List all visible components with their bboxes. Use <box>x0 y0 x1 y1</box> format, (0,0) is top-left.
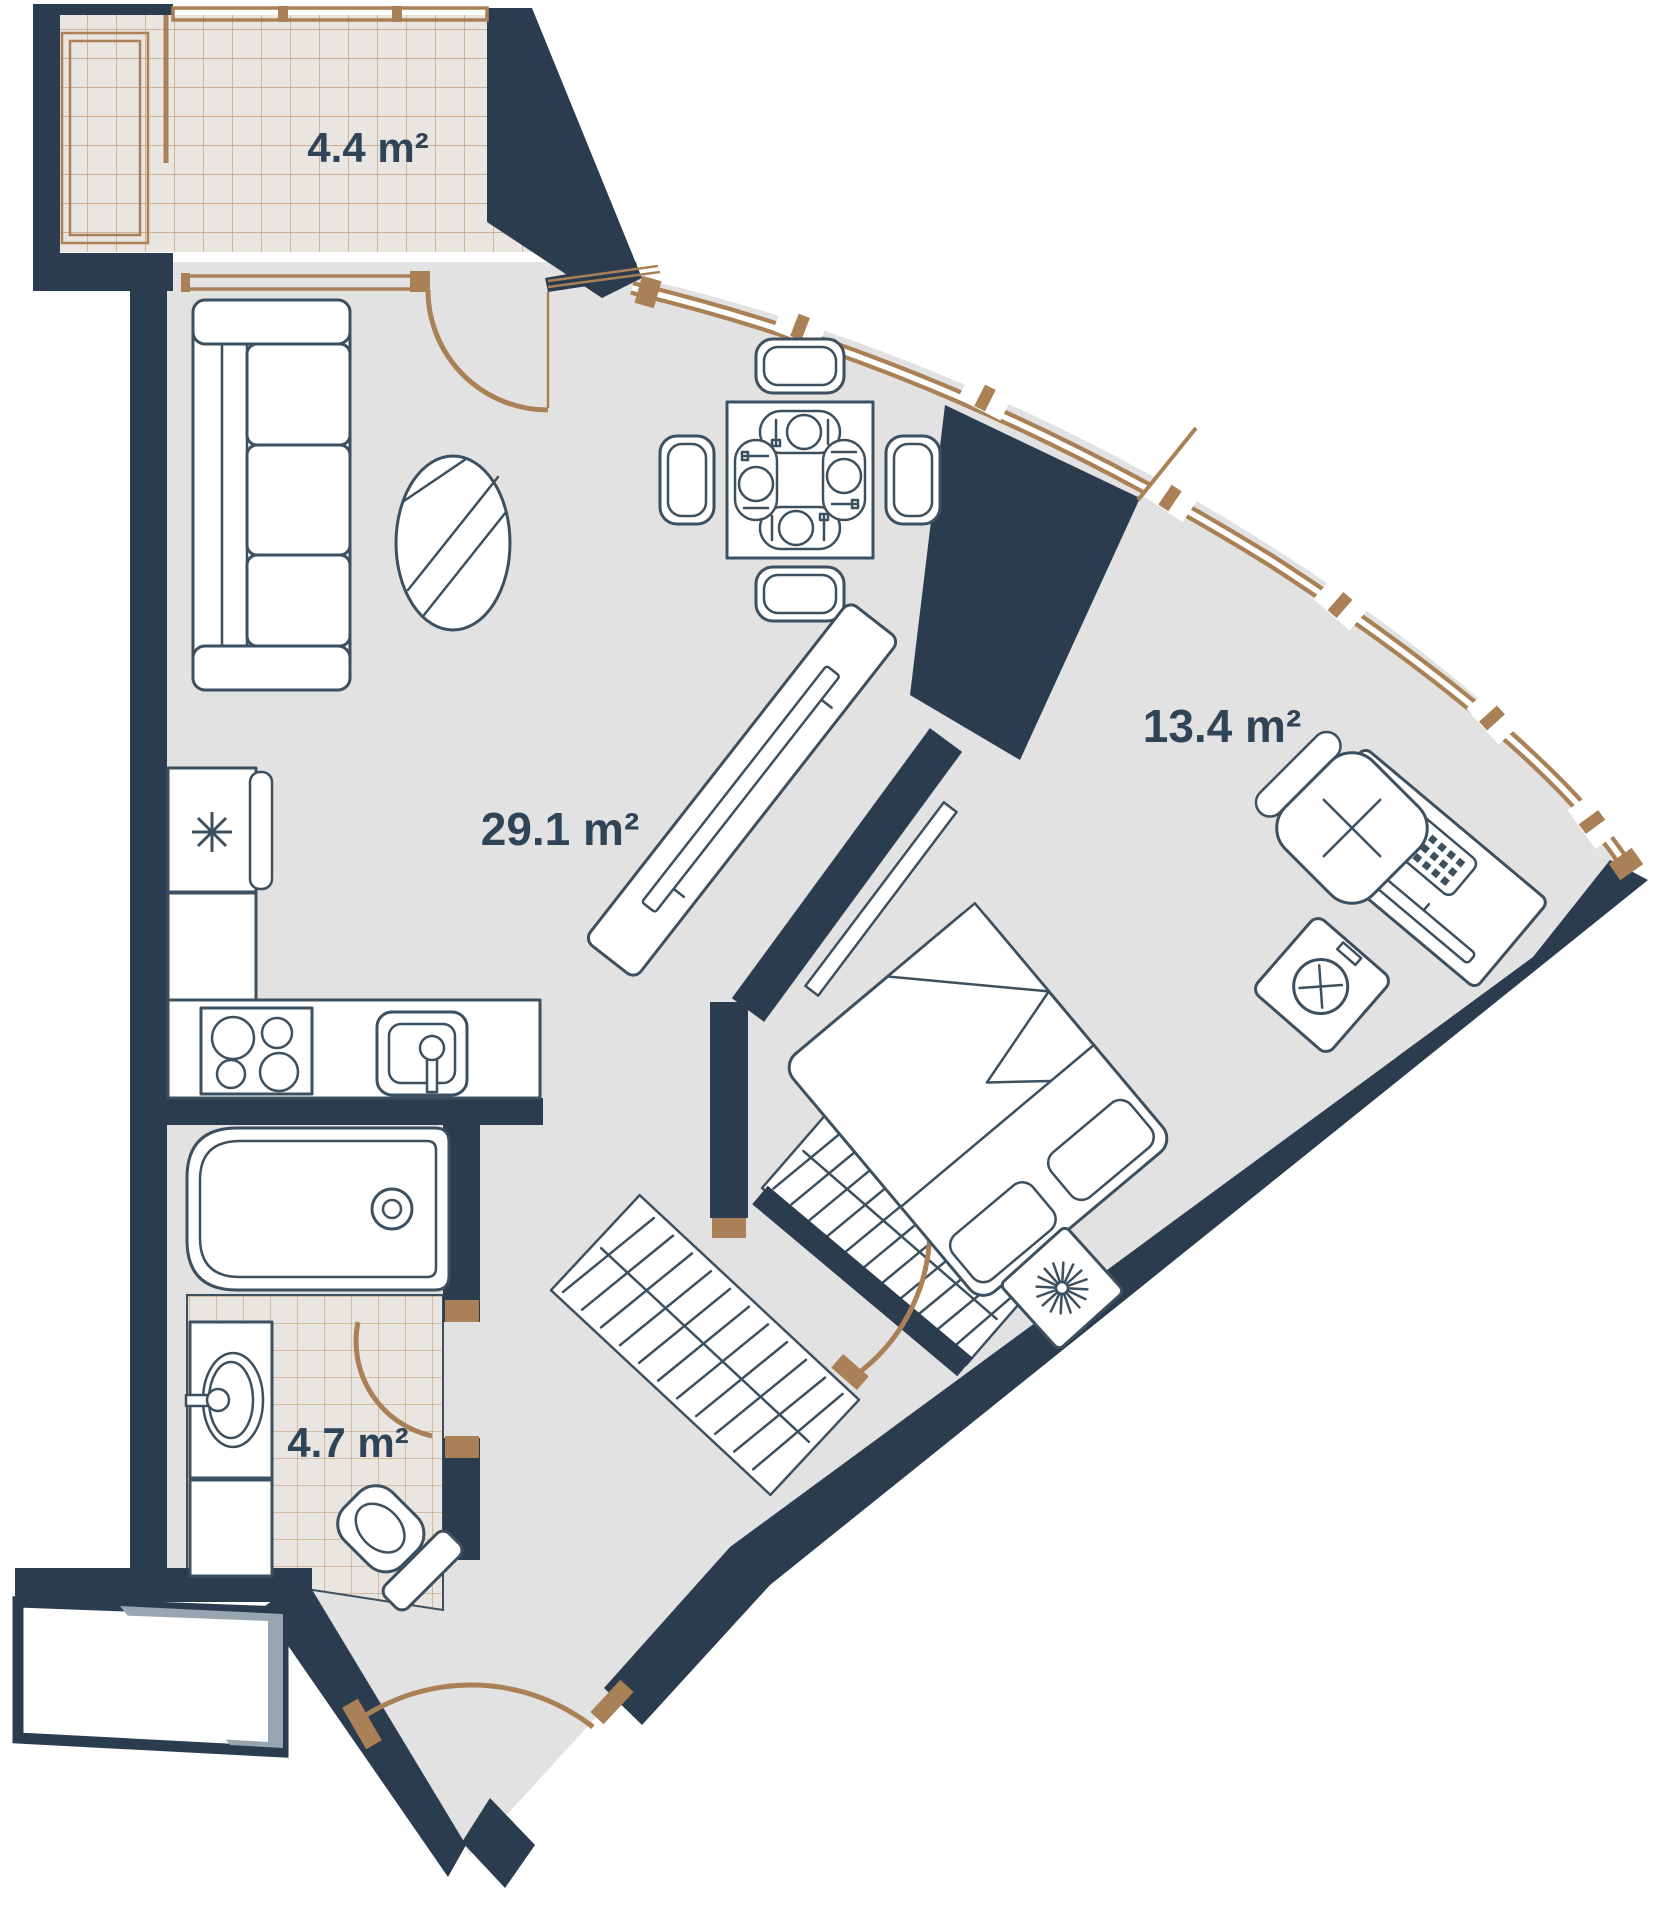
kitchen-counter <box>168 893 256 1000</box>
sofa-armrest <box>193 300 350 344</box>
sofa-armrest <box>193 646 350 690</box>
washbasin <box>186 1322 272 1576</box>
faucet-icon <box>207 1389 229 1411</box>
dining-chair <box>886 436 940 524</box>
refrigerator-door <box>250 772 272 889</box>
room-label-bedroom: 13.4 m² <box>1143 700 1302 752</box>
kitchen-sink-icon <box>377 1012 467 1095</box>
floor-plan-drawing: 4.4 m² 29.1 m² 13.4 m² 4.7 m² <box>0 0 1658 1910</box>
coffee-table <box>396 456 510 630</box>
room-label-living: 29.1 m² <box>481 803 640 855</box>
partition-end-wall <box>710 1002 748 1218</box>
snowflake-icon <box>192 812 232 852</box>
bath-cabinet <box>190 1480 272 1576</box>
bathtub <box>187 1128 449 1290</box>
entrance-landing <box>18 1602 283 1752</box>
stove-icon <box>201 1008 312 1094</box>
dining-chair <box>756 567 844 621</box>
dining-chair <box>756 339 844 393</box>
place-setting-icon <box>735 440 777 520</box>
room-label-balcony: 4.4 m² <box>307 124 428 171</box>
balcony-pillar <box>487 8 642 298</box>
landing-step <box>30 1612 268 1742</box>
dining-chair <box>660 436 714 524</box>
left-wall <box>130 253 167 1580</box>
room-label-bathroom: 4.7 m² <box>287 1419 408 1466</box>
sofa <box>193 300 350 690</box>
kitchen-bath-wall <box>167 1098 543 1125</box>
floor-plan-page: 4.4 m² 29.1 m² 13.4 m² 4.7 m² <box>0 0 1658 1910</box>
place-setting-icon <box>823 440 865 520</box>
balcony-top-window-icon <box>173 6 487 22</box>
